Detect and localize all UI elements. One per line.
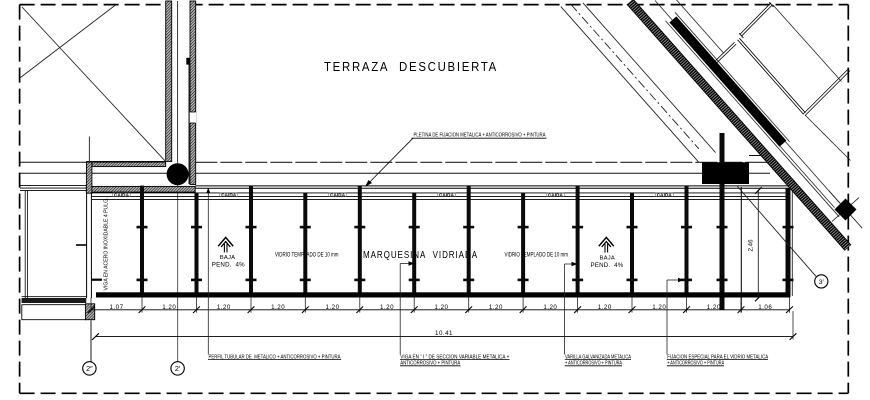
svg-text:1.20: 1.20 (217, 304, 231, 311)
svg-text:PEND. 4%: PEND. 4% (212, 261, 245, 268)
svg-text:1.20: 1.20 (271, 304, 285, 311)
svg-text:1.20: 1.20 (489, 304, 503, 311)
svg-text:BAJA: BAJA (600, 255, 616, 261)
svg-text:1.20: 1.20 (434, 304, 448, 311)
svg-text:MARQUESINA VIDRIADA: MARQUESINA VIDRIADA (363, 250, 478, 261)
svg-text:VIGA EN ACERO INOXIDABLE 4 PUL: VIGA EN ACERO INOXIDABLE 4 PULG. (104, 198, 110, 291)
svg-text:VIDRIO TEMPLADO DE 10 mm: VIDRIO TEMPLADO DE 10 mm (505, 252, 569, 259)
svg-text:1.06: 1.06 (758, 304, 772, 311)
svg-text:CAIDA: CAIDA (221, 193, 237, 198)
svg-text:1.07: 1.07 (109, 304, 123, 311)
svg-text:PEND. 4%: PEND. 4% (591, 262, 624, 269)
svg-text:1.20: 1.20 (652, 304, 666, 311)
svg-text:CAIDA: CAIDA (657, 193, 673, 198)
svg-text:CAIDA: CAIDA (439, 193, 455, 198)
svg-text:TERRAZA DESCUBIERTA: TERRAZA DESCUBIERTA (324, 59, 498, 74)
svg-text:10.41: 10.41 (435, 330, 453, 337)
svg-text:1.20: 1.20 (380, 304, 394, 311)
svg-text:1.20: 1.20 (598, 304, 612, 311)
svg-text:CAIDA: CAIDA (548, 193, 564, 198)
svg-text:PLETINA DE FIJACION METALICA +: PLETINA DE FIJACION METALICA + ANTICORRO… (414, 133, 546, 139)
svg-text:2″: 2″ (86, 364, 93, 373)
svg-text:CAIDA: CAIDA (330, 193, 346, 198)
svg-text:3′: 3′ (819, 279, 825, 286)
svg-text:CAIDA: CAIDA (114, 193, 130, 198)
svg-text:2.46: 2.46 (748, 239, 755, 252)
svg-text:1.20: 1.20 (162, 304, 176, 311)
svg-text:2′: 2′ (175, 364, 181, 373)
svg-text:VIDRIO TEMPLADO DE 10 mm: VIDRIO TEMPLADO DE 10 mm (275, 252, 339, 259)
svg-text:BAJA: BAJA (220, 255, 236, 261)
svg-text:1.20: 1.20 (326, 304, 340, 311)
svg-text:1.20: 1.20 (707, 304, 721, 311)
svg-text:1.20: 1.20 (543, 304, 557, 311)
